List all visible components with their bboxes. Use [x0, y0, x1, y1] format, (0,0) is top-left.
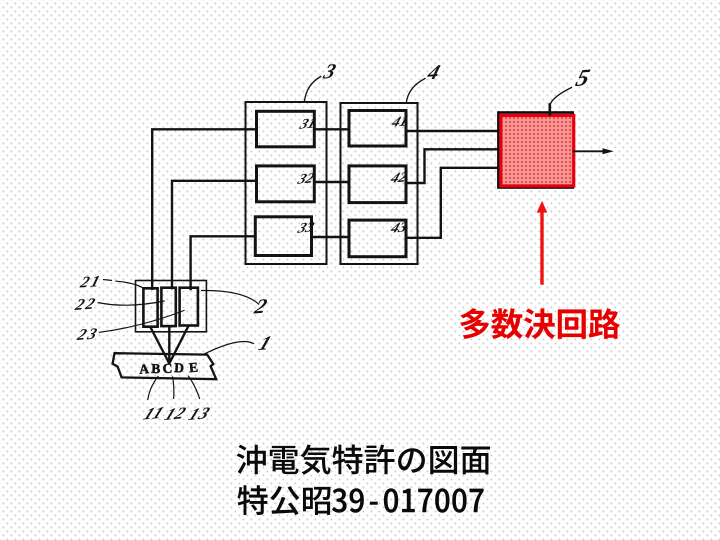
- svg-text:B: B: [151, 361, 161, 376]
- svg-text:3: 3: [320, 59, 339, 83]
- svg-text:5: 5: [573, 65, 593, 92]
- svg-text:23: 23: [74, 324, 101, 344]
- svg-text:C: C: [162, 361, 172, 376]
- svg-text:2: 2: [251, 294, 270, 318]
- svg-text:13: 13: [186, 403, 214, 423]
- svg-text:D: D: [174, 360, 185, 376]
- svg-text:33: 33: [295, 219, 317, 237]
- svg-text:A: A: [139, 361, 150, 377]
- svg-text:1: 1: [256, 331, 275, 354]
- svg-text:E: E: [188, 360, 198, 376]
- svg-text:22: 22: [72, 294, 99, 314]
- svg-text:4: 4: [424, 60, 443, 84]
- svg-text:21: 21: [77, 272, 104, 292]
